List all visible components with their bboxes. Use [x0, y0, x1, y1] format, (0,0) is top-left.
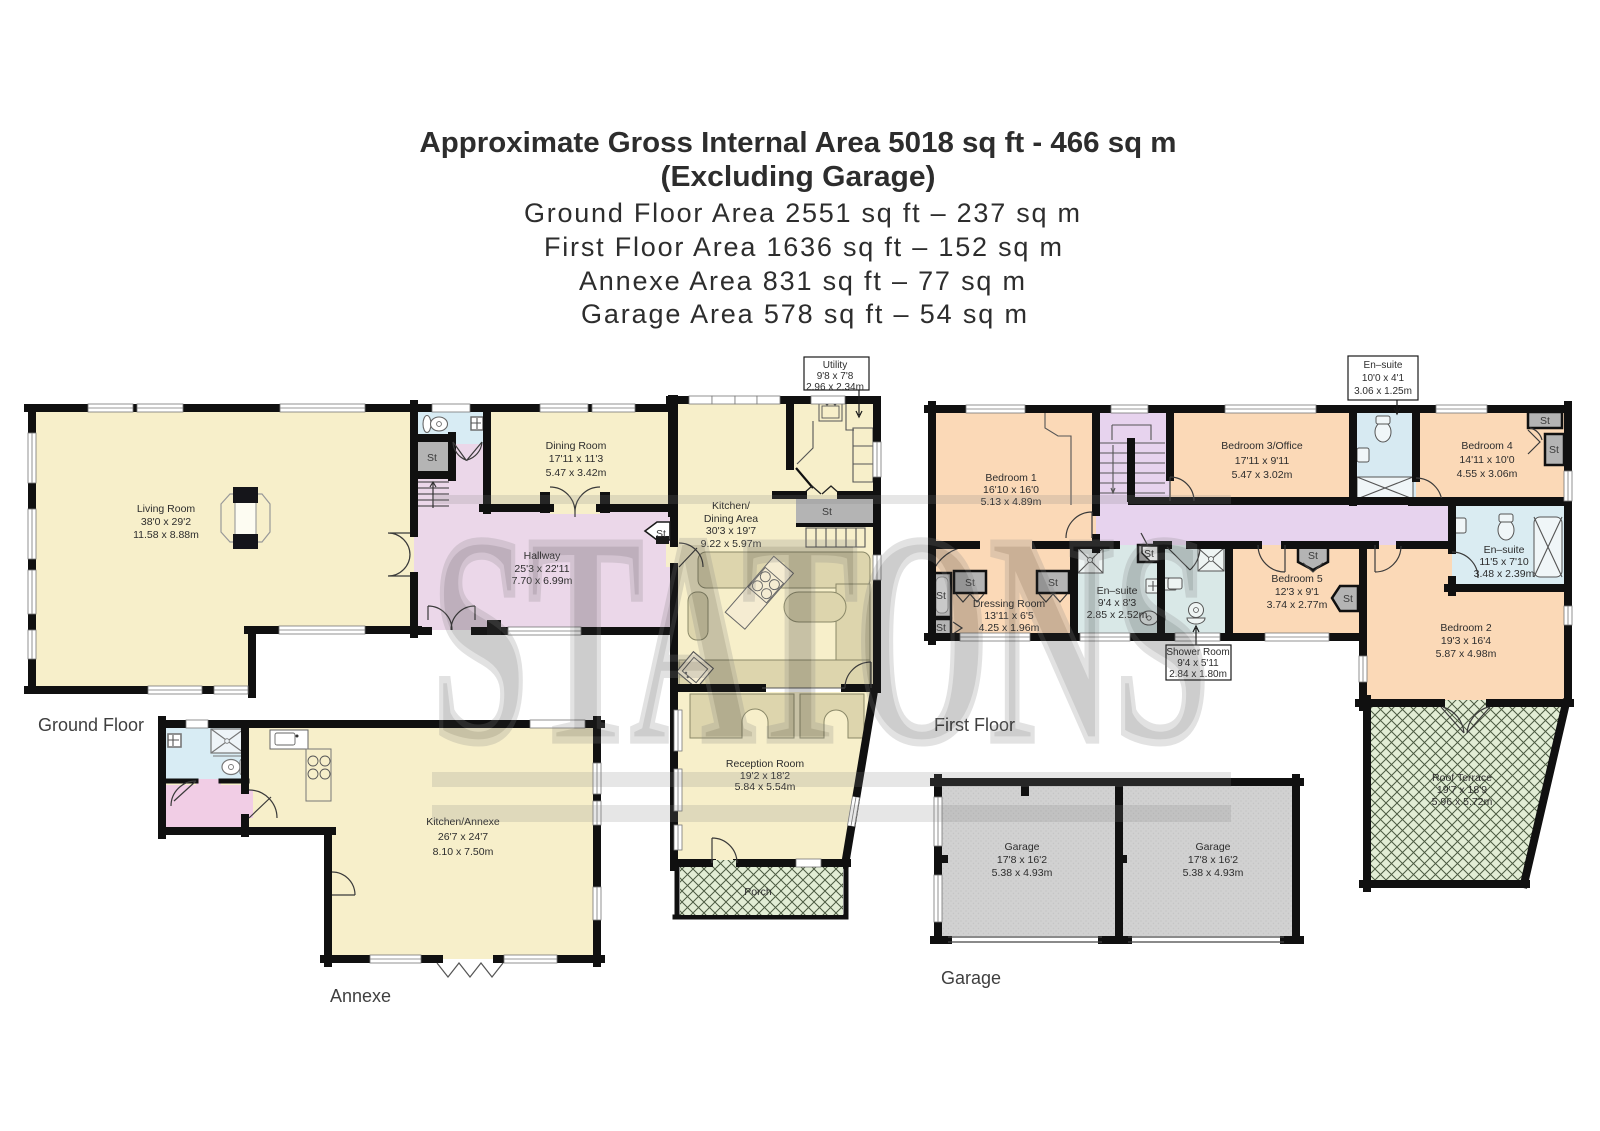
svg-text:Bedroom 3/Office: Bedroom 3/Office: [1221, 440, 1303, 452]
svg-text:Annexe: Annexe: [330, 986, 391, 1006]
svg-text:Garage: Garage: [1004, 841, 1039, 853]
svg-text:Living Room: Living Room: [137, 503, 196, 515]
svg-text:17'11 x 9'11: 17'11 x 9'11: [1235, 455, 1290, 467]
svg-text:4.55 x 3.06m: 4.55 x 3.06m: [1457, 468, 1518, 480]
svg-text:Roof Terrace: Roof Terrace: [1432, 772, 1492, 784]
svg-text:Approximate Gross Internal Are: Approximate Gross Internal Area 5018 sq …: [420, 127, 1177, 159]
svg-text:En–suite: En–suite: [1364, 360, 1403, 371]
svg-text:Garage: Garage: [1195, 841, 1230, 853]
svg-text:38'0 x 29'2: 38'0 x 29'2: [141, 516, 191, 528]
svg-text:5.38 x 4.93m: 5.38 x 4.93m: [1183, 867, 1244, 879]
svg-text:5.96 x 5.72m: 5.96 x 5.72m: [1432, 796, 1493, 808]
svg-text:First Floor Area 1636 sq ft –: First Floor Area 1636 sq ft – 152 sq m: [544, 232, 1062, 262]
svg-text:St: St: [427, 452, 437, 464]
svg-text:14'11 x 10'0: 14'11 x 10'0: [1459, 454, 1514, 466]
svg-text:19'3 x 16'4: 19'3 x 16'4: [1441, 635, 1491, 647]
svg-text:Bedroom 4: Bedroom 4: [1461, 440, 1513, 452]
svg-text:St: St: [1308, 550, 1318, 562]
svg-text:17'8 x 16'2: 17'8 x 16'2: [997, 854, 1047, 866]
svg-text:Garage Area 578 sq ft – 54 sq: Garage Area 578 sq ft – 54 sq m: [581, 299, 1027, 329]
svg-text:Utility: Utility: [823, 360, 847, 371]
svg-text:En–suite: En–suite: [1484, 544, 1525, 556]
svg-text:5.87 x 4.98m: 5.87 x 4.98m: [1436, 648, 1497, 660]
svg-text:5.47 x 3.02m: 5.47 x 3.02m: [1232, 469, 1293, 481]
svg-text:3.74 x 2.77m: 3.74 x 2.77m: [1267, 599, 1328, 611]
svg-text:STATONS: STATONS: [432, 473, 1210, 806]
svg-text:Dining Room: Dining Room: [546, 440, 607, 452]
svg-text:11'5 x 7'10: 11'5 x 7'10: [1479, 556, 1529, 568]
svg-text:5.38 x 4.93m: 5.38 x 4.93m: [992, 867, 1053, 879]
svg-text:Ground Floor Area 2551 sq ft –: Ground Floor Area 2551 sq ft – 237 sq m: [524, 198, 1080, 228]
svg-text:Garage: Garage: [941, 968, 1001, 988]
svg-text:26'7 x 24'7: 26'7 x 24'7: [438, 831, 488, 843]
svg-text:(Excluding Garage): (Excluding Garage): [661, 161, 936, 193]
svg-text:St: St: [1540, 415, 1550, 427]
svg-text:17'8 x 16'2: 17'8 x 16'2: [1188, 854, 1238, 866]
svg-text:12'3 x 9'1: 12'3 x 9'1: [1275, 586, 1319, 598]
svg-text:10'0 x 4'1: 10'0 x 4'1: [1362, 373, 1405, 384]
svg-text:2.96 x 2.34m: 2.96 x 2.34m: [806, 382, 864, 393]
svg-text:Ground Floor: Ground Floor: [38, 715, 144, 735]
svg-text:Annexe Area 831 sq ft – 77 sq: Annexe Area 831 sq ft – 77 sq m: [579, 266, 1025, 296]
svg-text:19'7 x 18'9: 19'7 x 18'9: [1437, 784, 1487, 796]
svg-text:3.06 x 1.25m: 3.06 x 1.25m: [1354, 386, 1412, 397]
svg-text:Bedroom 2: Bedroom 2: [1440, 622, 1492, 634]
svg-text:11.58 x 8.88m: 11.58 x 8.88m: [133, 529, 199, 541]
svg-text:Bedroom 5: Bedroom 5: [1271, 573, 1323, 585]
svg-text:3.48 x 2.39m: 3.48 x 2.39m: [1474, 568, 1535, 580]
svg-text:Porch: Porch: [744, 886, 772, 898]
svg-text:St: St: [1549, 444, 1559, 456]
svg-text:St: St: [1343, 593, 1353, 605]
svg-text:17'11 x 11'3: 17'11 x 11'3: [549, 453, 604, 465]
svg-text:8.10 x 7.50m: 8.10 x 7.50m: [433, 846, 494, 858]
svg-text:9'8 x 7'8: 9'8 x 7'8: [817, 371, 854, 382]
